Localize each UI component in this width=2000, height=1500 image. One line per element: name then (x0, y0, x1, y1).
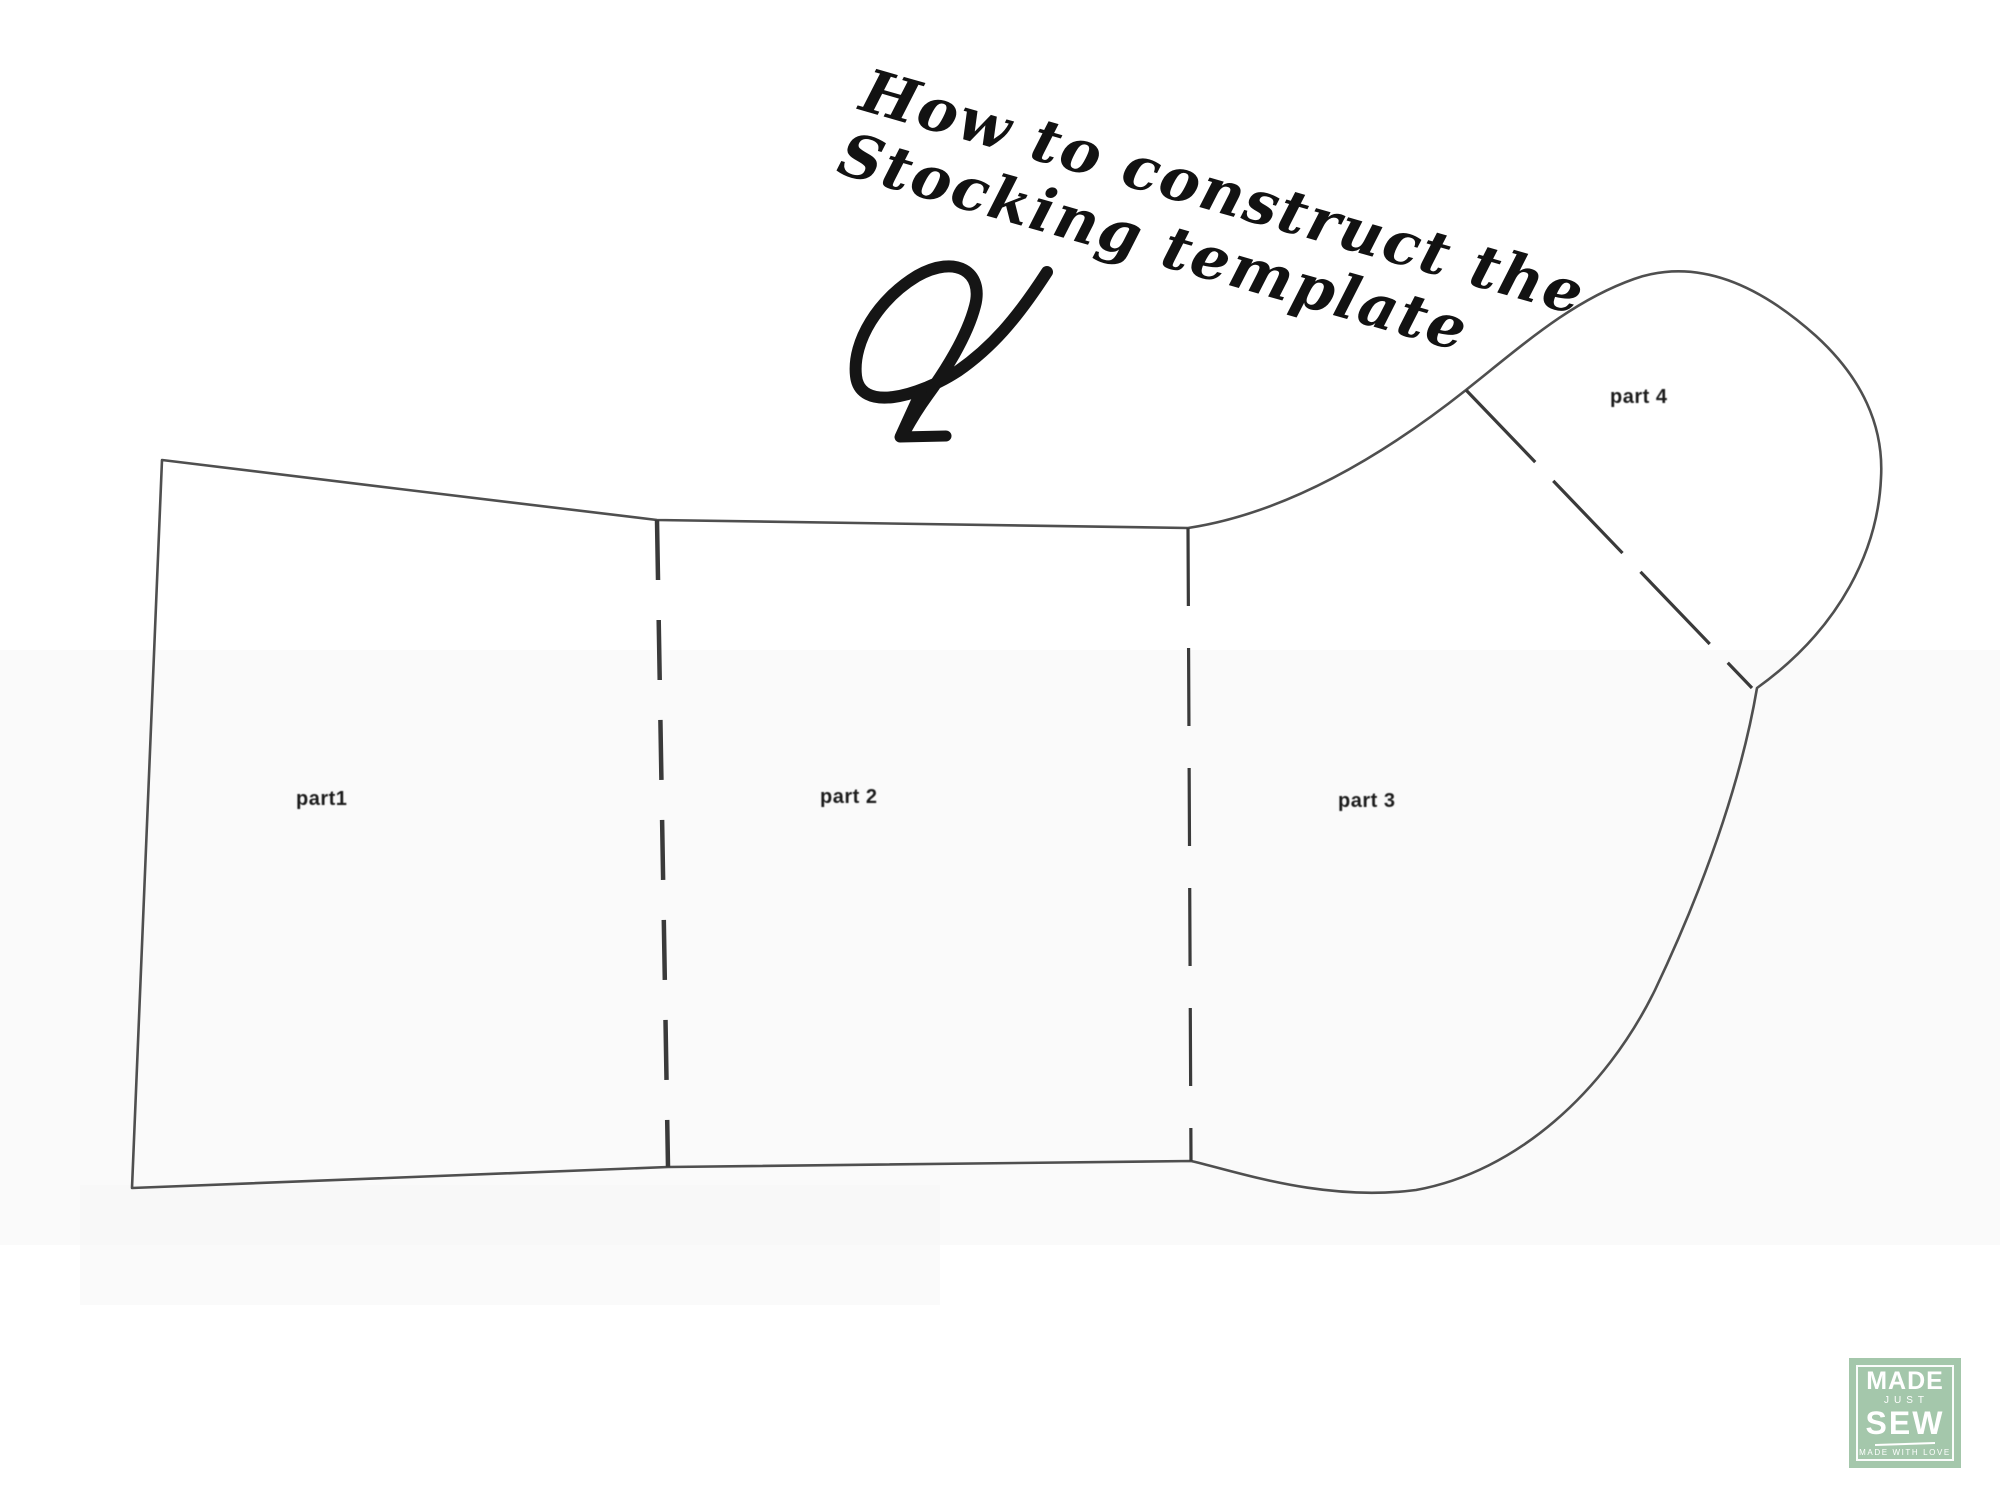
logo-tagline: MADE WITH LOVE (1859, 1449, 1951, 1457)
logo-word-sew: SEW (1866, 1407, 1945, 1439)
logo-text-stack: MADE JUST SEW MADE WITH LOVE (1849, 1358, 1961, 1468)
needle-icon (1875, 1442, 1935, 1446)
made-just-sew-logo: MADE JUST SEW MADE WITH LOVE (1849, 1358, 1961, 1468)
stocking-outline (132, 271, 1881, 1192)
part4-label: part 4 (1610, 386, 1667, 409)
fold-line-part3-part4 (1466, 390, 1752, 688)
part2-label: part 2 (820, 786, 877, 809)
part3-label: part 3 (1338, 790, 1395, 813)
curly-arrow-icon (856, 266, 1047, 431)
page: How to construct the Stocking template p… (0, 0, 2000, 1500)
part1-label: part1 (296, 788, 347, 811)
fold-line-part1-part2 (657, 520, 668, 1167)
logo-word-made: MADE (1866, 1369, 1944, 1394)
fold-line-part2-part3 (1188, 528, 1191, 1161)
